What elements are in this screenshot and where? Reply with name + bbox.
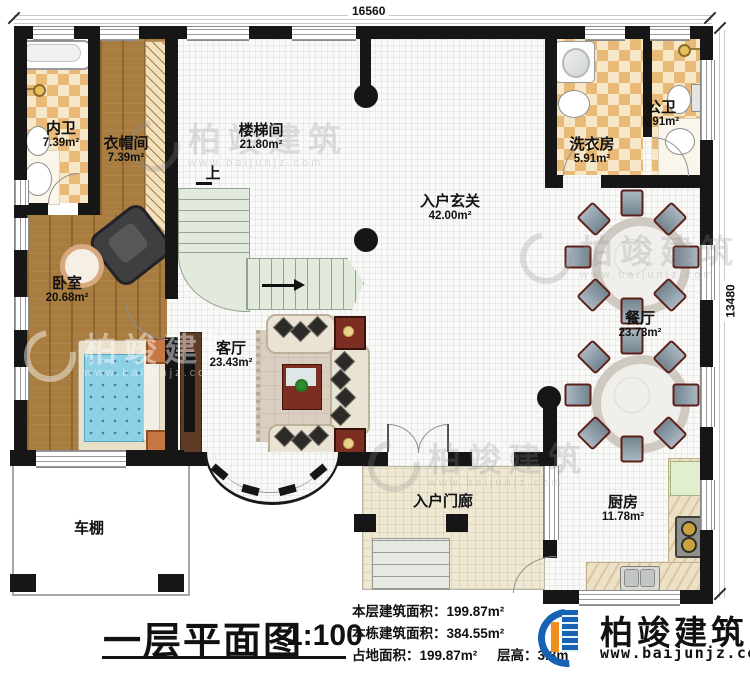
dining-chair bbox=[565, 246, 592, 269]
side-table-plant bbox=[343, 438, 354, 449]
dining-table-center bbox=[614, 239, 650, 275]
bed-mattress bbox=[84, 354, 144, 442]
right-dimension-line bbox=[719, 30, 720, 598]
logo-building-bar-orange bbox=[551, 622, 559, 652]
stove-burner bbox=[681, 537, 697, 553]
potted-plant bbox=[295, 379, 308, 392]
room-label-living: 客厅23.43m² bbox=[210, 341, 253, 370]
stove-burner bbox=[681, 521, 697, 537]
window bbox=[585, 26, 625, 41]
window bbox=[14, 367, 29, 400]
shower-head-icon bbox=[678, 44, 691, 57]
window bbox=[100, 26, 139, 41]
wall-segment bbox=[601, 175, 713, 188]
stat-footprint-line: 占地面积：199.87m² 层高：3.3m bbox=[352, 645, 568, 667]
dining-table-center bbox=[614, 377, 650, 413]
wall-segment bbox=[545, 39, 557, 179]
round-column bbox=[354, 228, 378, 252]
window bbox=[187, 26, 249, 41]
bed-pillow bbox=[143, 354, 160, 442]
room-label-kitchen: 厨房11.78m² bbox=[602, 495, 644, 524]
shower-head-icon bbox=[33, 84, 46, 97]
room-label-public-bath: 公卫5.91m² bbox=[643, 100, 679, 129]
room-label-cloakroom: 衣帽间7.39m² bbox=[103, 136, 148, 165]
stairs-arrow-head bbox=[294, 279, 305, 291]
logo-building-bar bbox=[562, 610, 578, 652]
room-label-entry-hall: 入户玄关42.00m² bbox=[420, 194, 480, 223]
porch-steps bbox=[372, 538, 450, 590]
round-column bbox=[537, 386, 561, 410]
stat-floor-area: 本层建筑面积：199.87m² bbox=[352, 601, 568, 623]
window bbox=[700, 245, 715, 300]
dining-chair bbox=[673, 384, 700, 407]
wall-segment bbox=[10, 450, 36, 466]
side-table-plant bbox=[343, 326, 354, 337]
stairs-direction-arrow bbox=[262, 284, 296, 287]
room-label-inner-bath: 内卫7.39m² bbox=[43, 121, 79, 150]
washing-machine-drum bbox=[562, 48, 590, 78]
wall-segment bbox=[354, 514, 376, 532]
wall-segment bbox=[165, 337, 178, 454]
wall-segment bbox=[448, 452, 472, 466]
window bbox=[700, 60, 715, 140]
round-column bbox=[354, 84, 378, 108]
wall-segment bbox=[446, 514, 468, 532]
company-logo-icon bbox=[538, 604, 594, 662]
dining-chair bbox=[621, 436, 644, 463]
stairs-up-label: 上 bbox=[205, 166, 220, 182]
stat-footprint: 占地面积：199.87m² bbox=[352, 648, 477, 663]
window bbox=[33, 26, 74, 41]
top-dimension-line bbox=[14, 19, 712, 20]
window bbox=[292, 26, 356, 41]
tv bbox=[184, 352, 195, 432]
room-label-bedroom: 卧室20.68m² bbox=[46, 276, 89, 305]
room-label-laundry: 洗衣房5.91m² bbox=[569, 137, 614, 166]
stairs-upper-flight bbox=[178, 188, 250, 255]
window bbox=[14, 218, 29, 250]
room-label-carport: 车棚 bbox=[74, 521, 104, 537]
entry-door-panel bbox=[447, 424, 449, 452]
window bbox=[36, 450, 126, 468]
window bbox=[650, 26, 690, 41]
window bbox=[543, 466, 559, 540]
dining-chair bbox=[565, 384, 592, 407]
stat-total-area: 本栋建筑面积：384.55m² bbox=[352, 623, 568, 645]
wall-segment bbox=[158, 574, 184, 592]
window bbox=[14, 180, 29, 205]
wall-segment bbox=[88, 39, 100, 215]
right-dimension-value: 13480 bbox=[724, 280, 738, 321]
company-url: www.baijunjz.com bbox=[600, 644, 750, 662]
dining-chair bbox=[673, 246, 700, 269]
wall-segment bbox=[360, 39, 371, 87]
refrigerator bbox=[670, 461, 702, 496]
wall-segment bbox=[10, 574, 36, 592]
room-label-stairwell: 楼梯间21.80m² bbox=[238, 123, 283, 152]
laundry-sink bbox=[558, 90, 590, 118]
top-dimension-line bbox=[14, 23, 712, 24]
floor-plan-canvas: 16560 13480 bbox=[0, 0, 750, 673]
wall-segment bbox=[165, 39, 178, 299]
building-stats: 本层建筑面积：199.87m² 本栋建筑面积：384.55m² 占地面积：199… bbox=[352, 601, 568, 667]
room-label-dining: 餐厅23.73m² bbox=[619, 311, 662, 340]
window bbox=[700, 367, 715, 427]
bathtub-basin bbox=[23, 44, 81, 62]
window bbox=[700, 480, 715, 530]
room-label-porch: 入户门廊 bbox=[413, 494, 473, 510]
dining-chair bbox=[621, 190, 644, 217]
title-underline bbox=[102, 656, 346, 659]
kitchen-sink-basin bbox=[624, 569, 639, 587]
window bbox=[579, 590, 680, 606]
stairs-start-mark bbox=[196, 182, 212, 185]
wall-segment bbox=[336, 452, 388, 466]
wall-segment bbox=[545, 175, 563, 188]
window bbox=[14, 297, 29, 330]
wall-segment bbox=[680, 590, 713, 604]
kitchen-sink-basin bbox=[640, 569, 655, 587]
wall-segment bbox=[78, 203, 100, 215]
wall-segment bbox=[158, 450, 184, 466]
entry-door-panel bbox=[387, 424, 389, 452]
top-dimension-value: 16560 bbox=[348, 4, 389, 18]
